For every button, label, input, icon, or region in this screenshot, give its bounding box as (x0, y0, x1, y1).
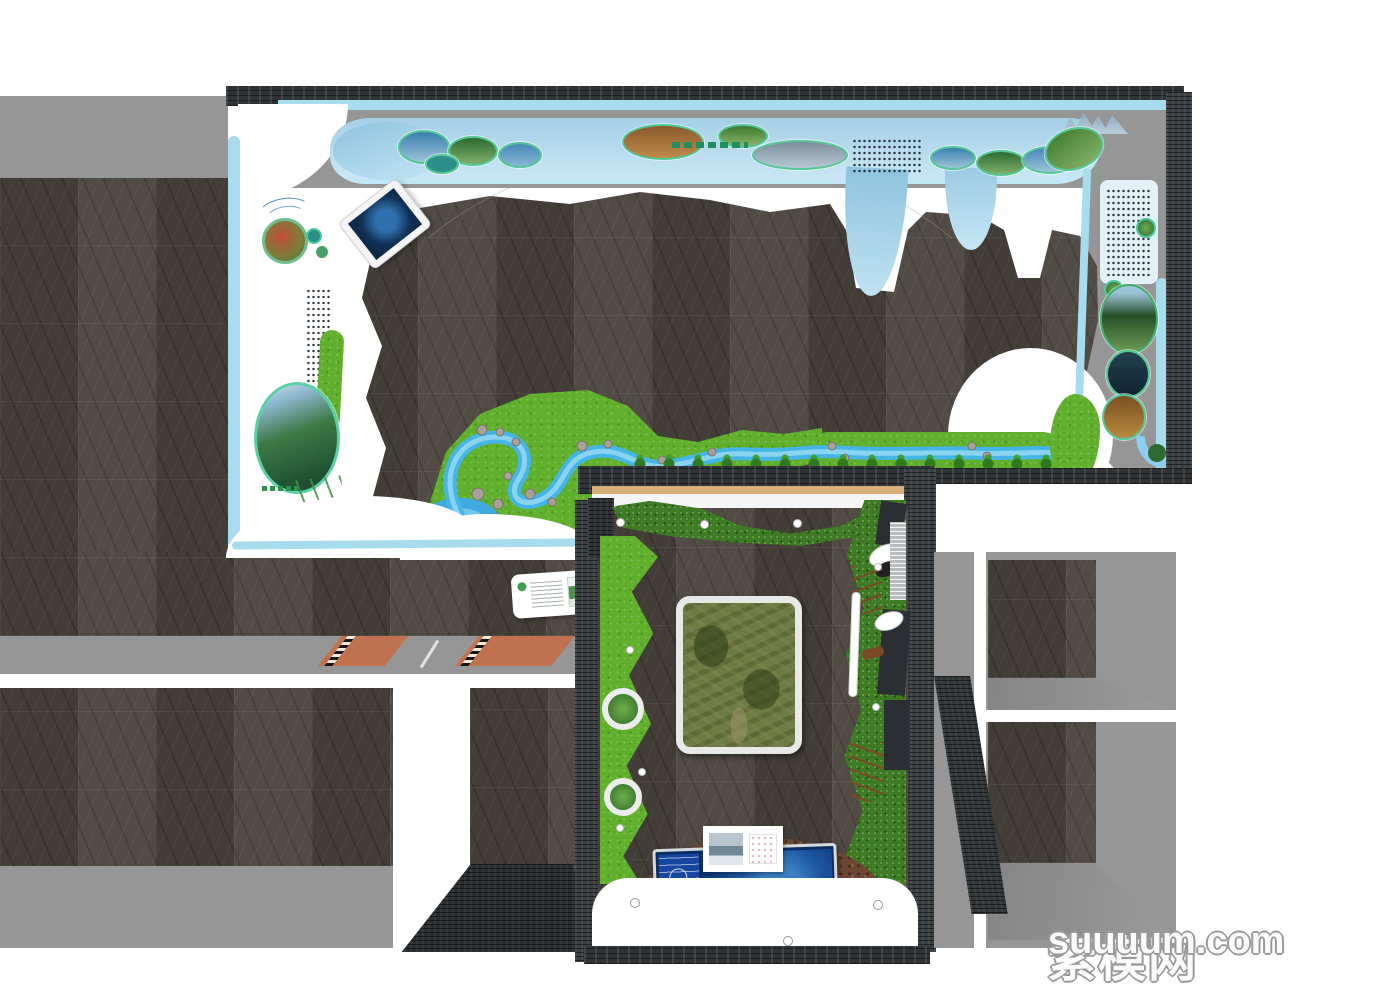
right-room-stone-wall-upper (988, 560, 1096, 678)
downlight (626, 646, 634, 654)
downlight (616, 824, 624, 832)
display-board-3 (884, 700, 910, 770)
west-small-circle-1 (306, 228, 322, 244)
entry-slate-floor (398, 864, 580, 952)
watermark: 素模网suuuum.com (1048, 920, 1378, 990)
downlight (793, 519, 802, 528)
right-room-stone-wall-lower (988, 722, 1096, 863)
exhibit-card (703, 826, 783, 872)
wall-light (873, 900, 883, 910)
ribbon-photo-lake-2 (498, 142, 542, 168)
wall-light (783, 936, 793, 946)
entry-stone-block (470, 688, 577, 866)
left-stone-wall (0, 178, 228, 558)
card-sketch (749, 834, 777, 864)
left-wall-top-band (0, 96, 228, 180)
plaque-text-lines (530, 579, 564, 607)
east-panel-badge-1 (1136, 218, 1156, 238)
west-small-circle-2 (316, 246, 328, 258)
ribbon-photo-forest-3 (976, 150, 1026, 176)
ribbon-green-title-text (672, 142, 748, 148)
round-planter-2 (604, 778, 642, 816)
inner-room-south-wall (592, 878, 918, 948)
inner-room-south-exterior-strip (584, 946, 930, 964)
lower-left-wall-top (0, 866, 393, 948)
downlight (616, 518, 625, 527)
inner-room-west-wall (575, 500, 600, 962)
east-photo-forest (1100, 284, 1158, 354)
lower-left-stone-block (0, 688, 393, 868)
east-photo-dark (1106, 350, 1150, 398)
card-photo-landscape (709, 833, 743, 865)
ribbon-photo-teal (425, 154, 459, 174)
west-green-caption-text (262, 486, 298, 491)
branch-sculpture-2 (850, 742, 884, 802)
inner-room-wood-trim (592, 486, 908, 494)
right-rooms-divider (982, 710, 1176, 722)
east-crescent-photo (1148, 444, 1166, 462)
terrain-diorama-table (676, 596, 802, 754)
ribbon-text-block (852, 138, 922, 174)
round-planter-1 (602, 688, 644, 730)
ribbon-photo-lake-3 (930, 146, 976, 170)
hall-east-exterior-wall (1166, 92, 1192, 484)
ribbon-photo-mountain-lake (752, 140, 848, 170)
exhibition-hall-top-view-render: 素模网suuuum.com (0, 0, 1378, 1000)
hall-west-cyan-wall (228, 136, 240, 548)
watermark-site-domain: suuuum.com (1048, 920, 1284, 963)
west-photo-round (262, 218, 308, 264)
downlight (874, 563, 882, 571)
downlight (638, 768, 646, 776)
wall-light (630, 898, 640, 908)
hall-south-exterior-wall-east (930, 468, 1192, 484)
caption-strip (890, 522, 906, 600)
downlight (700, 520, 709, 529)
downlight (872, 703, 880, 711)
plaque-logo (517, 582, 527, 592)
